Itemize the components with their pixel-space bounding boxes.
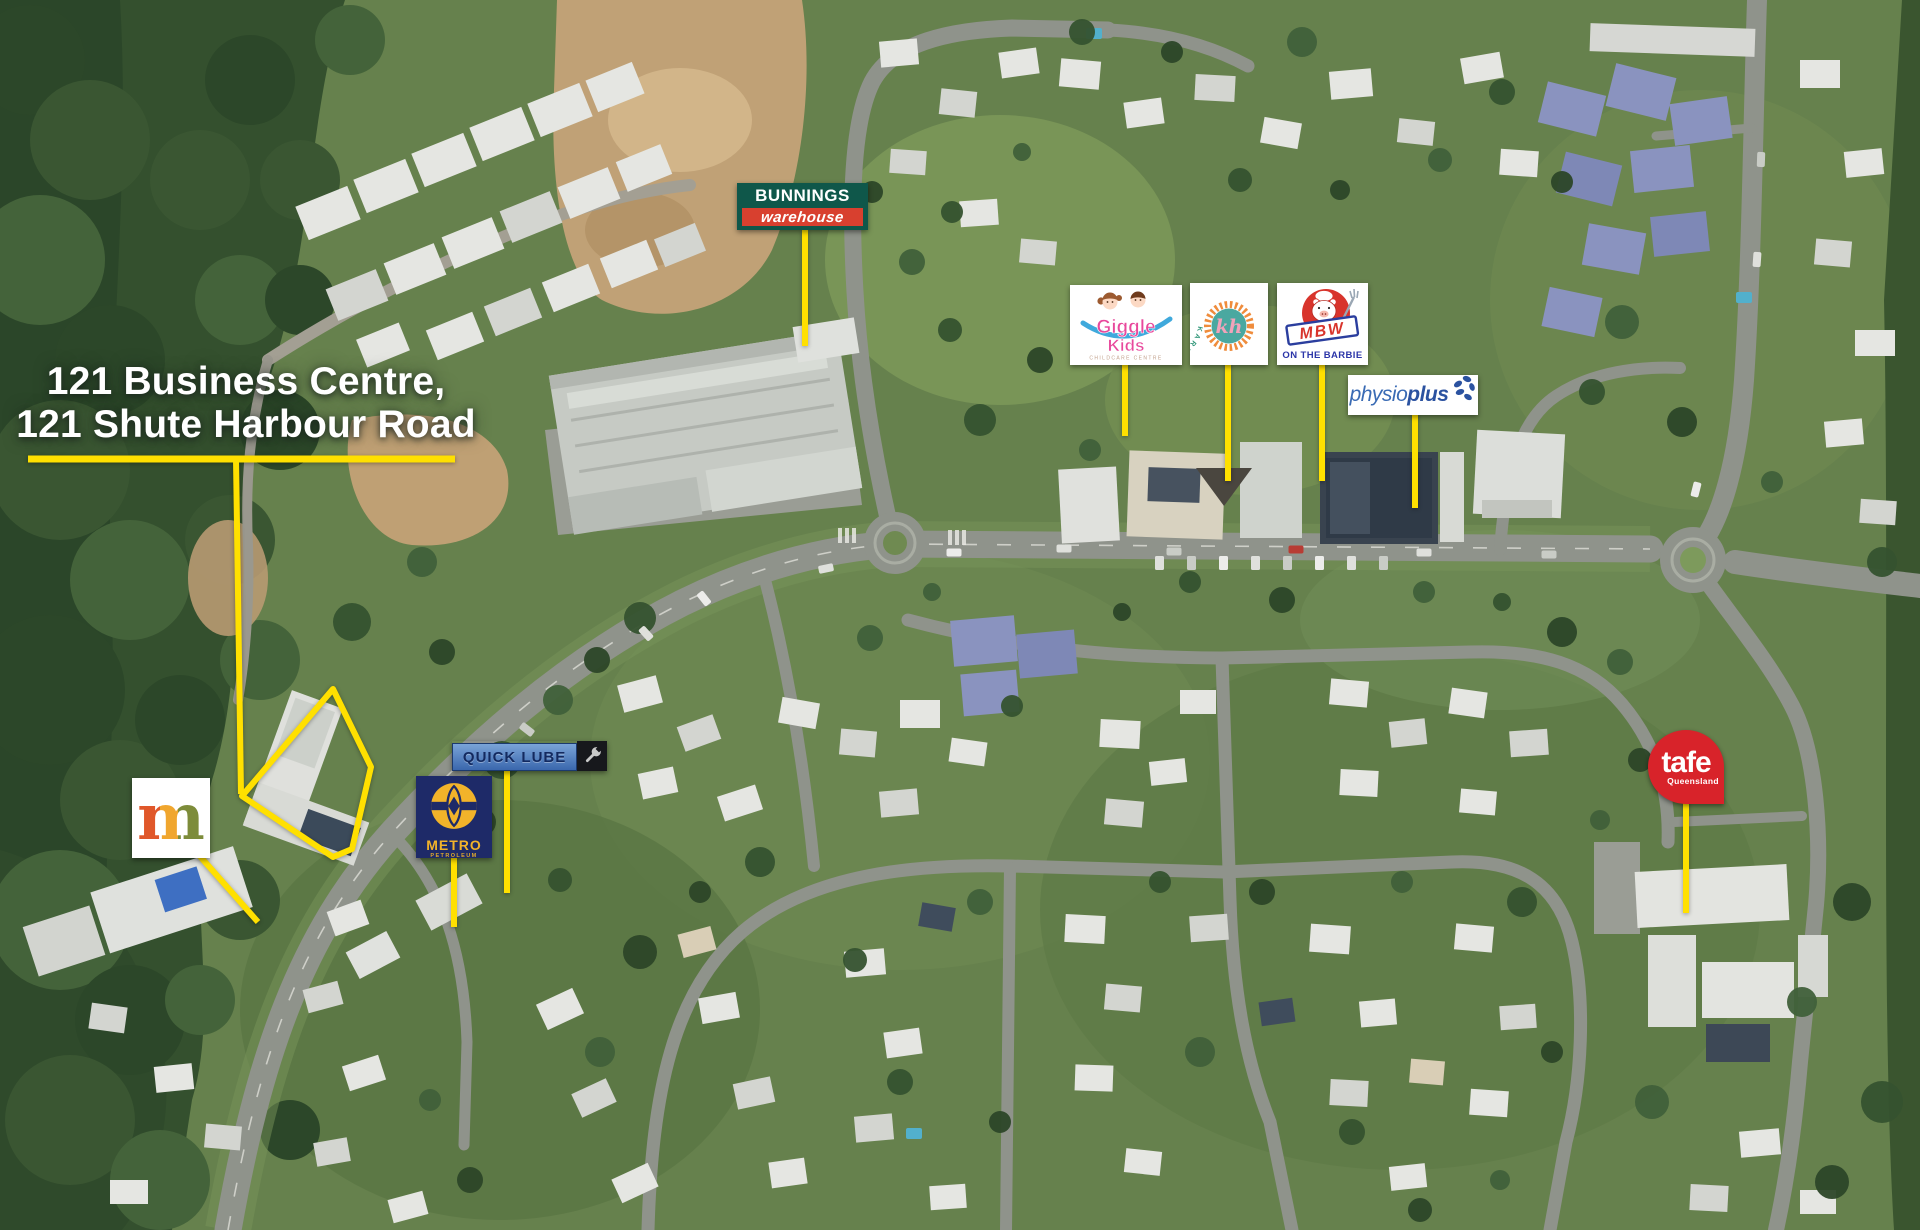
queensland-word: Queensland [1667, 776, 1719, 786]
svg-text:KAREN HILL FLORAL DESIGN: KAREN HILL FLORAL DESIGN [1190, 287, 1203, 359]
mbw-banner: MBW [1286, 316, 1358, 345]
mbw-on-the-barbie-logo: MBW ON THE BARBIE [1277, 283, 1368, 365]
cartoon-kids-icon [1097, 292, 1145, 310]
annotation-layer [0, 0, 1920, 1230]
aerial-location-map: 121 Business Centre, 121 Shute Harbour R… [0, 0, 1920, 1230]
address-line-2: 121 Shute Harbour Road [16, 403, 476, 446]
childcare-tagline: CHILDCARE CENTRE [1089, 356, 1162, 362]
quick-lube-banner: QUICK LUBE [452, 743, 577, 771]
wrench-icon [577, 741, 607, 771]
m-letter-icon: m [137, 792, 205, 843]
bunnings-wordmark: BUNNINGS [737, 186, 868, 206]
address-line-1: 121 Business Centre, [16, 360, 476, 403]
bunnings-warehouse-logo: BUNNINGS warehouse [737, 183, 868, 230]
metro-emblem-icon [429, 781, 479, 831]
metro-wordmark: METRO [416, 837, 492, 853]
address-label: 121 Business Centre, 121 Shute Harbour R… [16, 360, 476, 447]
m-centre-leader-line [198, 854, 258, 922]
karen-hill-floral-design-logo: kh KAREN HILL FLORAL DESIGN [1190, 283, 1268, 365]
property-boundary-outline [242, 689, 371, 857]
physioplus-logo: physioplus [1348, 375, 1478, 415]
tafe-queensland-logo: tafe Queensland [1648, 730, 1724, 804]
bunnings-warehouse-word: warehouse [760, 209, 845, 226]
petals-icon [1450, 375, 1476, 405]
kh-monogram: kh [1216, 316, 1243, 338]
mbw-tagline: ON THE BARBIE [1277, 350, 1368, 361]
tafe-wordmark: tafe [1661, 749, 1710, 776]
giggle-kids-logo: Giggle Kids CHILDCARE CENTRE [1070, 285, 1182, 365]
physio-word: physio [1350, 383, 1408, 407]
karen-hill-ring-text: KAREN HILL FLORAL DESIGN [1190, 287, 1203, 359]
kids-word: Kids [1108, 336, 1145, 355]
address-leader-line [236, 459, 241, 794]
m-centre-logo: m [132, 778, 210, 858]
metro-petroleum-logo: METRO PETROLEUM [416, 776, 492, 858]
plus-word: plus [1407, 383, 1448, 407]
petroleum-word: PETROLEUM [416, 853, 492, 859]
bunnings-red-band: warehouse [742, 208, 863, 226]
giggle-word: Giggle [1096, 317, 1155, 338]
quick-lube-wordmark: QUICK LUBE [463, 749, 566, 766]
quick-lube-logo: QUICK LUBE [452, 741, 607, 771]
